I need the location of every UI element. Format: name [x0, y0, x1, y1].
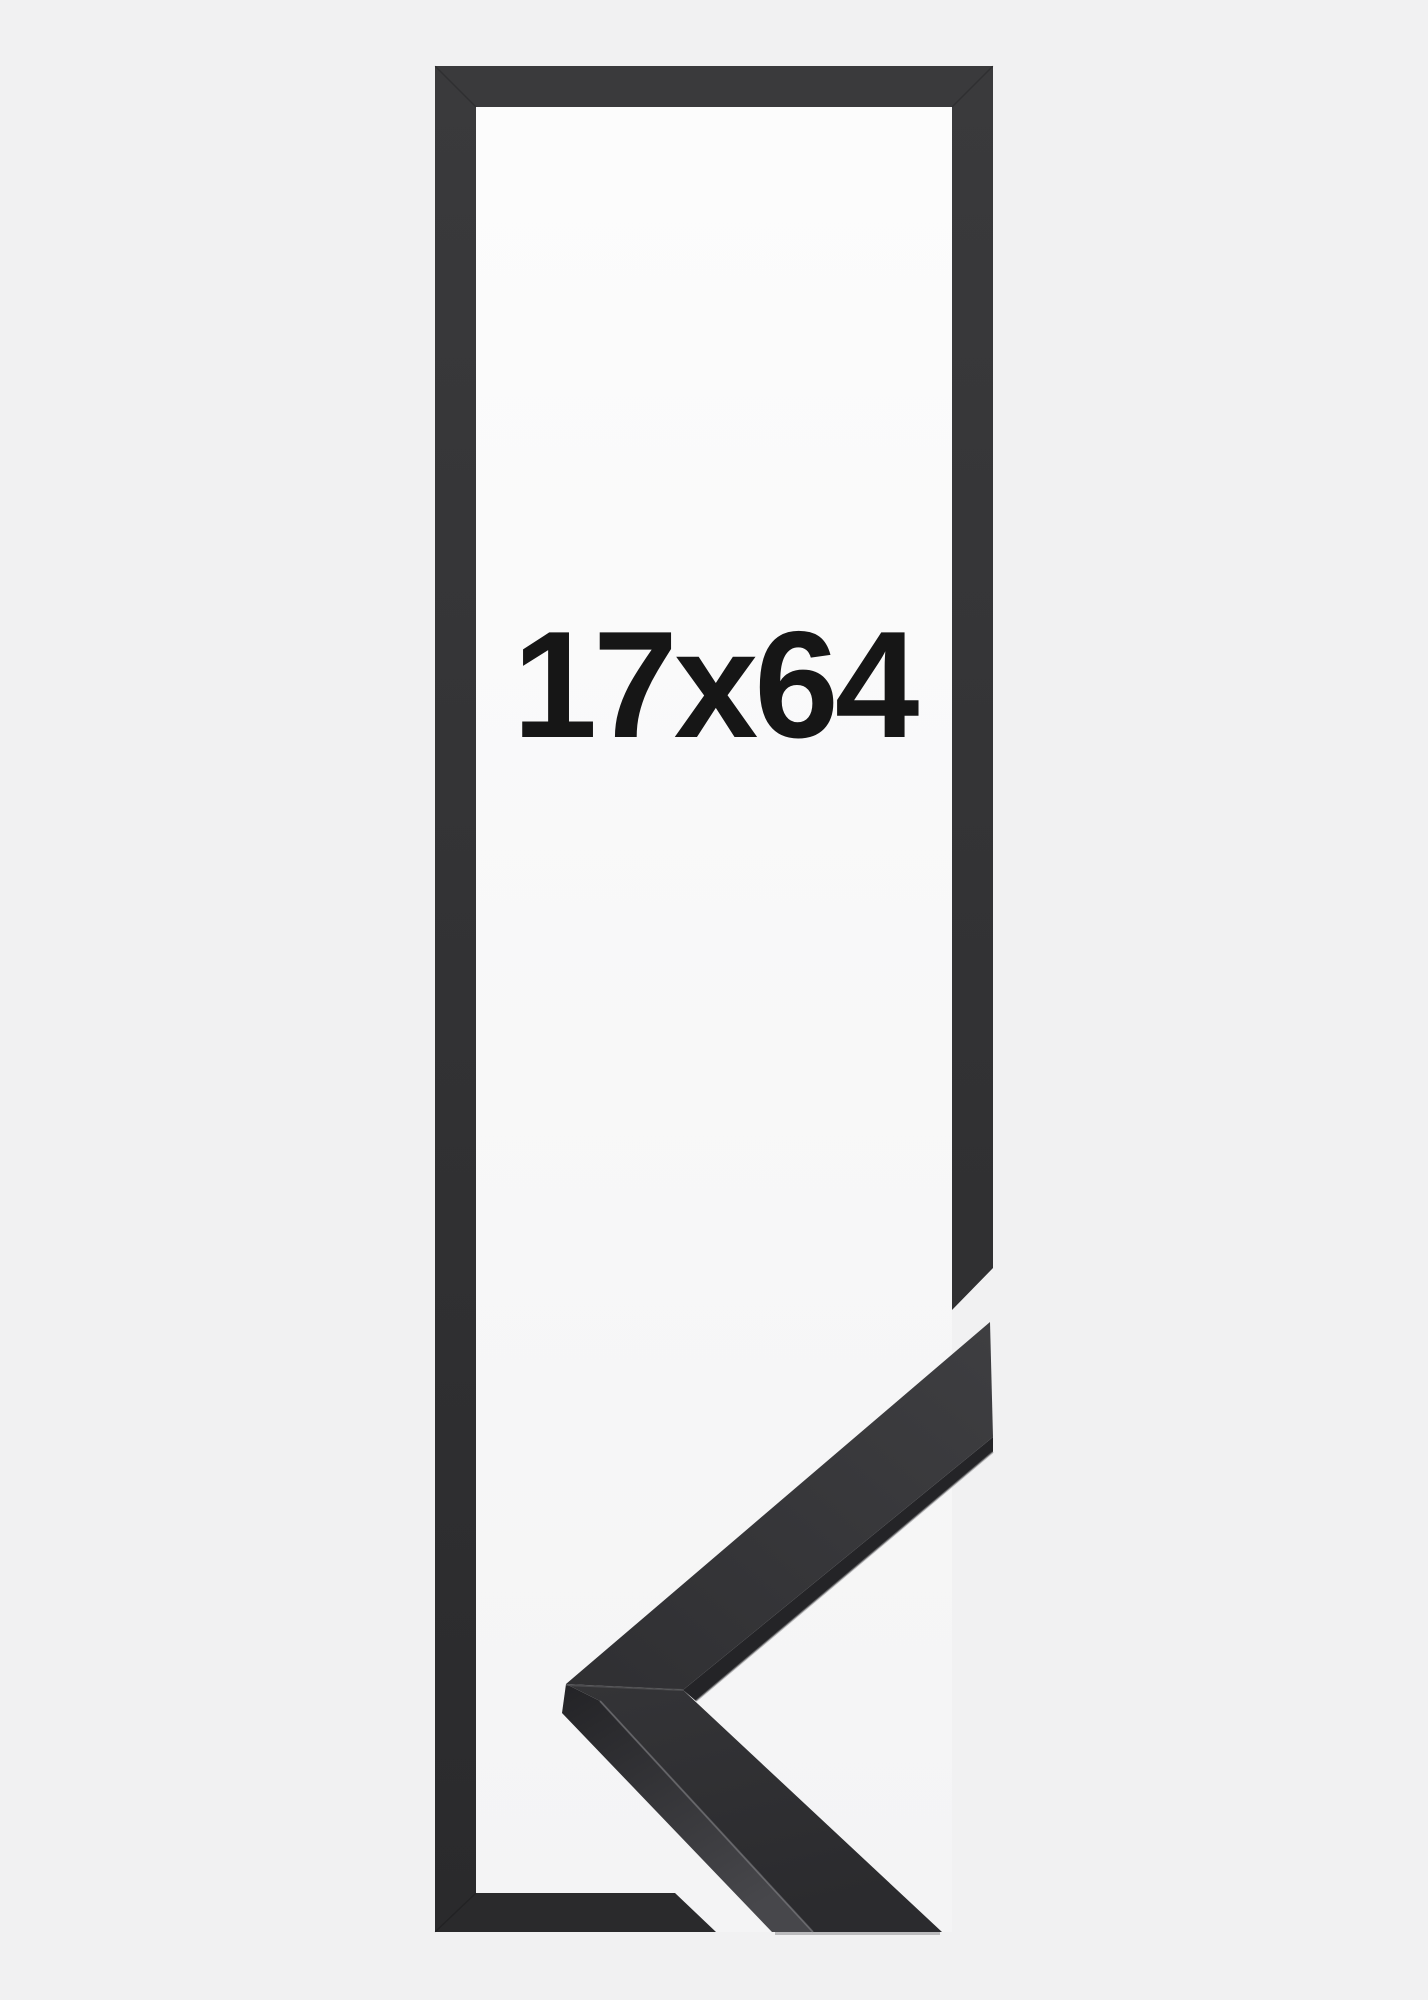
frame-illustration [0, 0, 1428, 2000]
size-label: 17x64 [476, 577, 952, 793]
product-photo: 17x64 [0, 0, 1428, 2000]
